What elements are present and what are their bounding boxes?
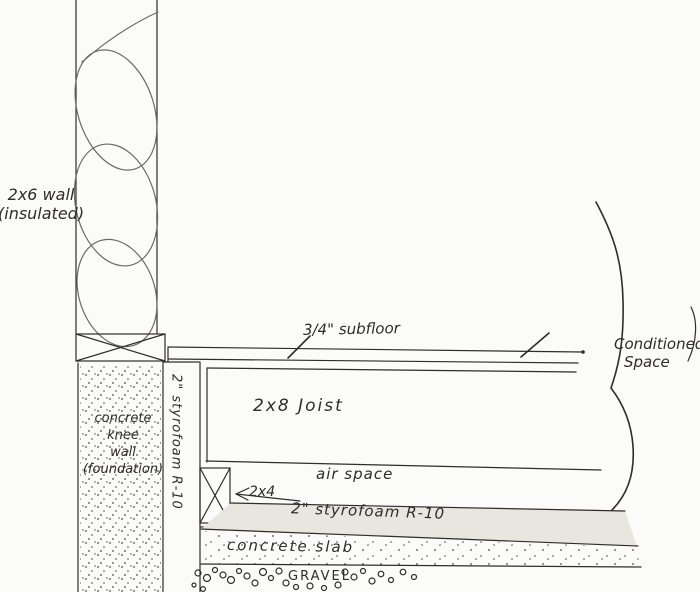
- subfloor-tick-right: [521, 333, 549, 357]
- label-knee-wall: concrete knee wall (foundation): [70, 411, 176, 479]
- label-knee-wall-line2: knee: [70, 428, 176, 445]
- joist-bottom-line: [206, 461, 601, 470]
- label-styrofoam-vertical: 2" styrofoam R-10: [168, 374, 183, 569]
- label-conditioned-space: Conditioned Space: [614, 336, 700, 371]
- label-conditioned-line1: Conditioned: [614, 336, 700, 354]
- sill-plate: [76, 334, 165, 361]
- construction-detail-sketch: 2x6 wall (insulated) concrete knee wall …: [0, 0, 700, 592]
- label-2x6-wall-line2: (insulated): [0, 205, 84, 224]
- label-subfloor: 3/4" subfloor: [303, 320, 400, 339]
- label-knee-wall-line4: (foundation): [70, 462, 176, 479]
- subfloor: [168, 333, 585, 372]
- label-concrete-slab: concrete slab: [227, 537, 354, 557]
- insulation-coil: [61, 12, 172, 357]
- stud-wall: [76, 0, 157, 333]
- label-2x4: 2x4: [249, 484, 275, 501]
- label-2x6-wall: 2x6 wall (insulated): [0, 186, 84, 224]
- label-gravel: GRAVEL: [288, 569, 351, 584]
- label-joist: 2x8 Joist: [253, 396, 344, 416]
- label-knee-wall-line3: wall: [70, 445, 176, 462]
- label-2x6-wall-line1: 2x6 wall: [0, 186, 84, 205]
- label-air-space: air space: [316, 466, 393, 484]
- label-knee-wall-line1: concrete: [70, 411, 176, 428]
- label-conditioned-line2: Space: [624, 354, 700, 372]
